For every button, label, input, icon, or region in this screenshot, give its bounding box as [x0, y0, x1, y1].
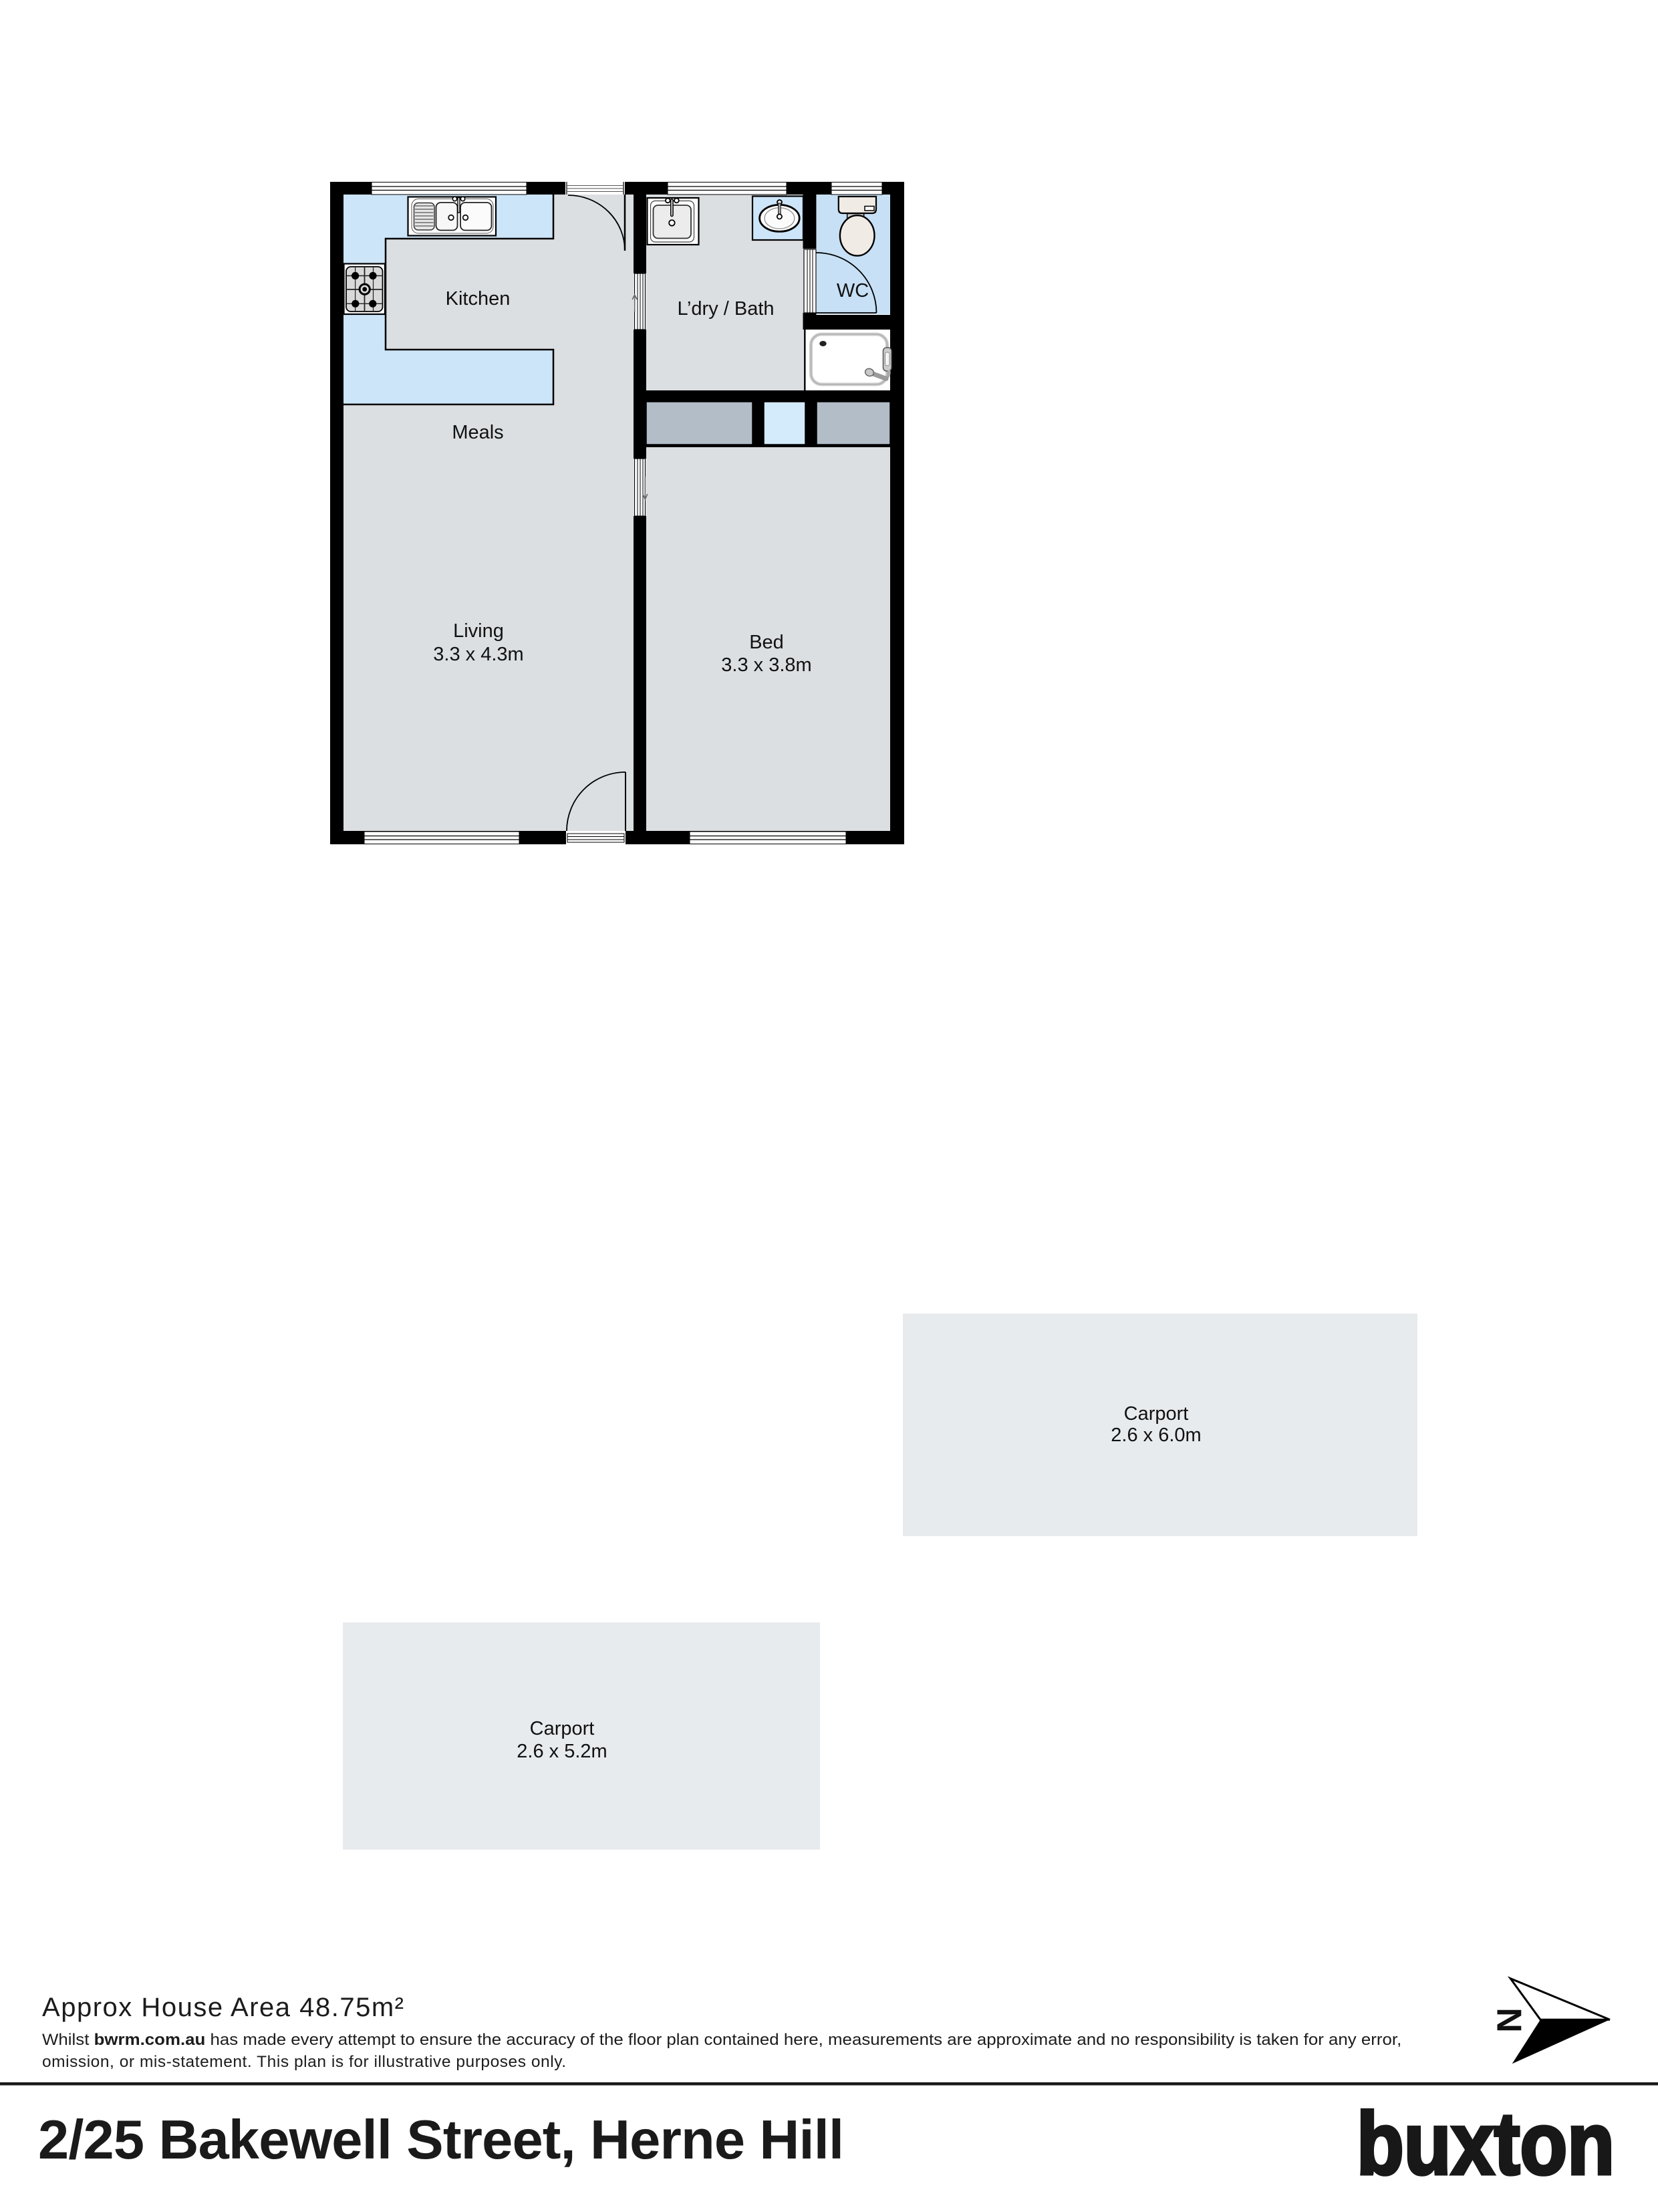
svg-text:omission, or mis-statement. Th: omission, or mis-statement. This plan is… — [42, 2053, 566, 2071]
svg-text:3.3 x 3.8m: 3.3 x 3.8m — [721, 654, 811, 676]
svg-text:Bed: Bed — [749, 632, 784, 653]
svg-text:WC: WC — [837, 280, 869, 301]
svg-text:2.6 x 5.2m: 2.6 x 5.2m — [517, 1741, 607, 1762]
svg-text:Carport: Carport — [530, 1718, 595, 1739]
svg-text:Meals: Meals — [452, 422, 503, 443]
svg-text:Carport: Carport — [1124, 1403, 1189, 1425]
svg-text:Kitchen: Kitchen — [446, 288, 511, 310]
svg-text:3.3 x 4.3m: 3.3 x 4.3m — [433, 644, 523, 665]
svg-text:Living: Living — [453, 620, 504, 642]
svg-text:2/25 Bakewell Street, Herne Hi: 2/25 Bakewell Street, Herne Hill — [38, 2108, 844, 2171]
svg-text:N: N — [1490, 2007, 1528, 2033]
svg-text:buxton: buxton — [1357, 2094, 1615, 2193]
svg-text:2.6 x 6.0m: 2.6 x 6.0m — [1111, 1425, 1201, 1446]
svg-text:Whilst bwrm.com.au has made ev: Whilst bwrm.com.au has made every attemp… — [42, 2031, 1401, 2049]
svg-text:L’dry / Bath: L’dry / Bath — [677, 298, 774, 320]
